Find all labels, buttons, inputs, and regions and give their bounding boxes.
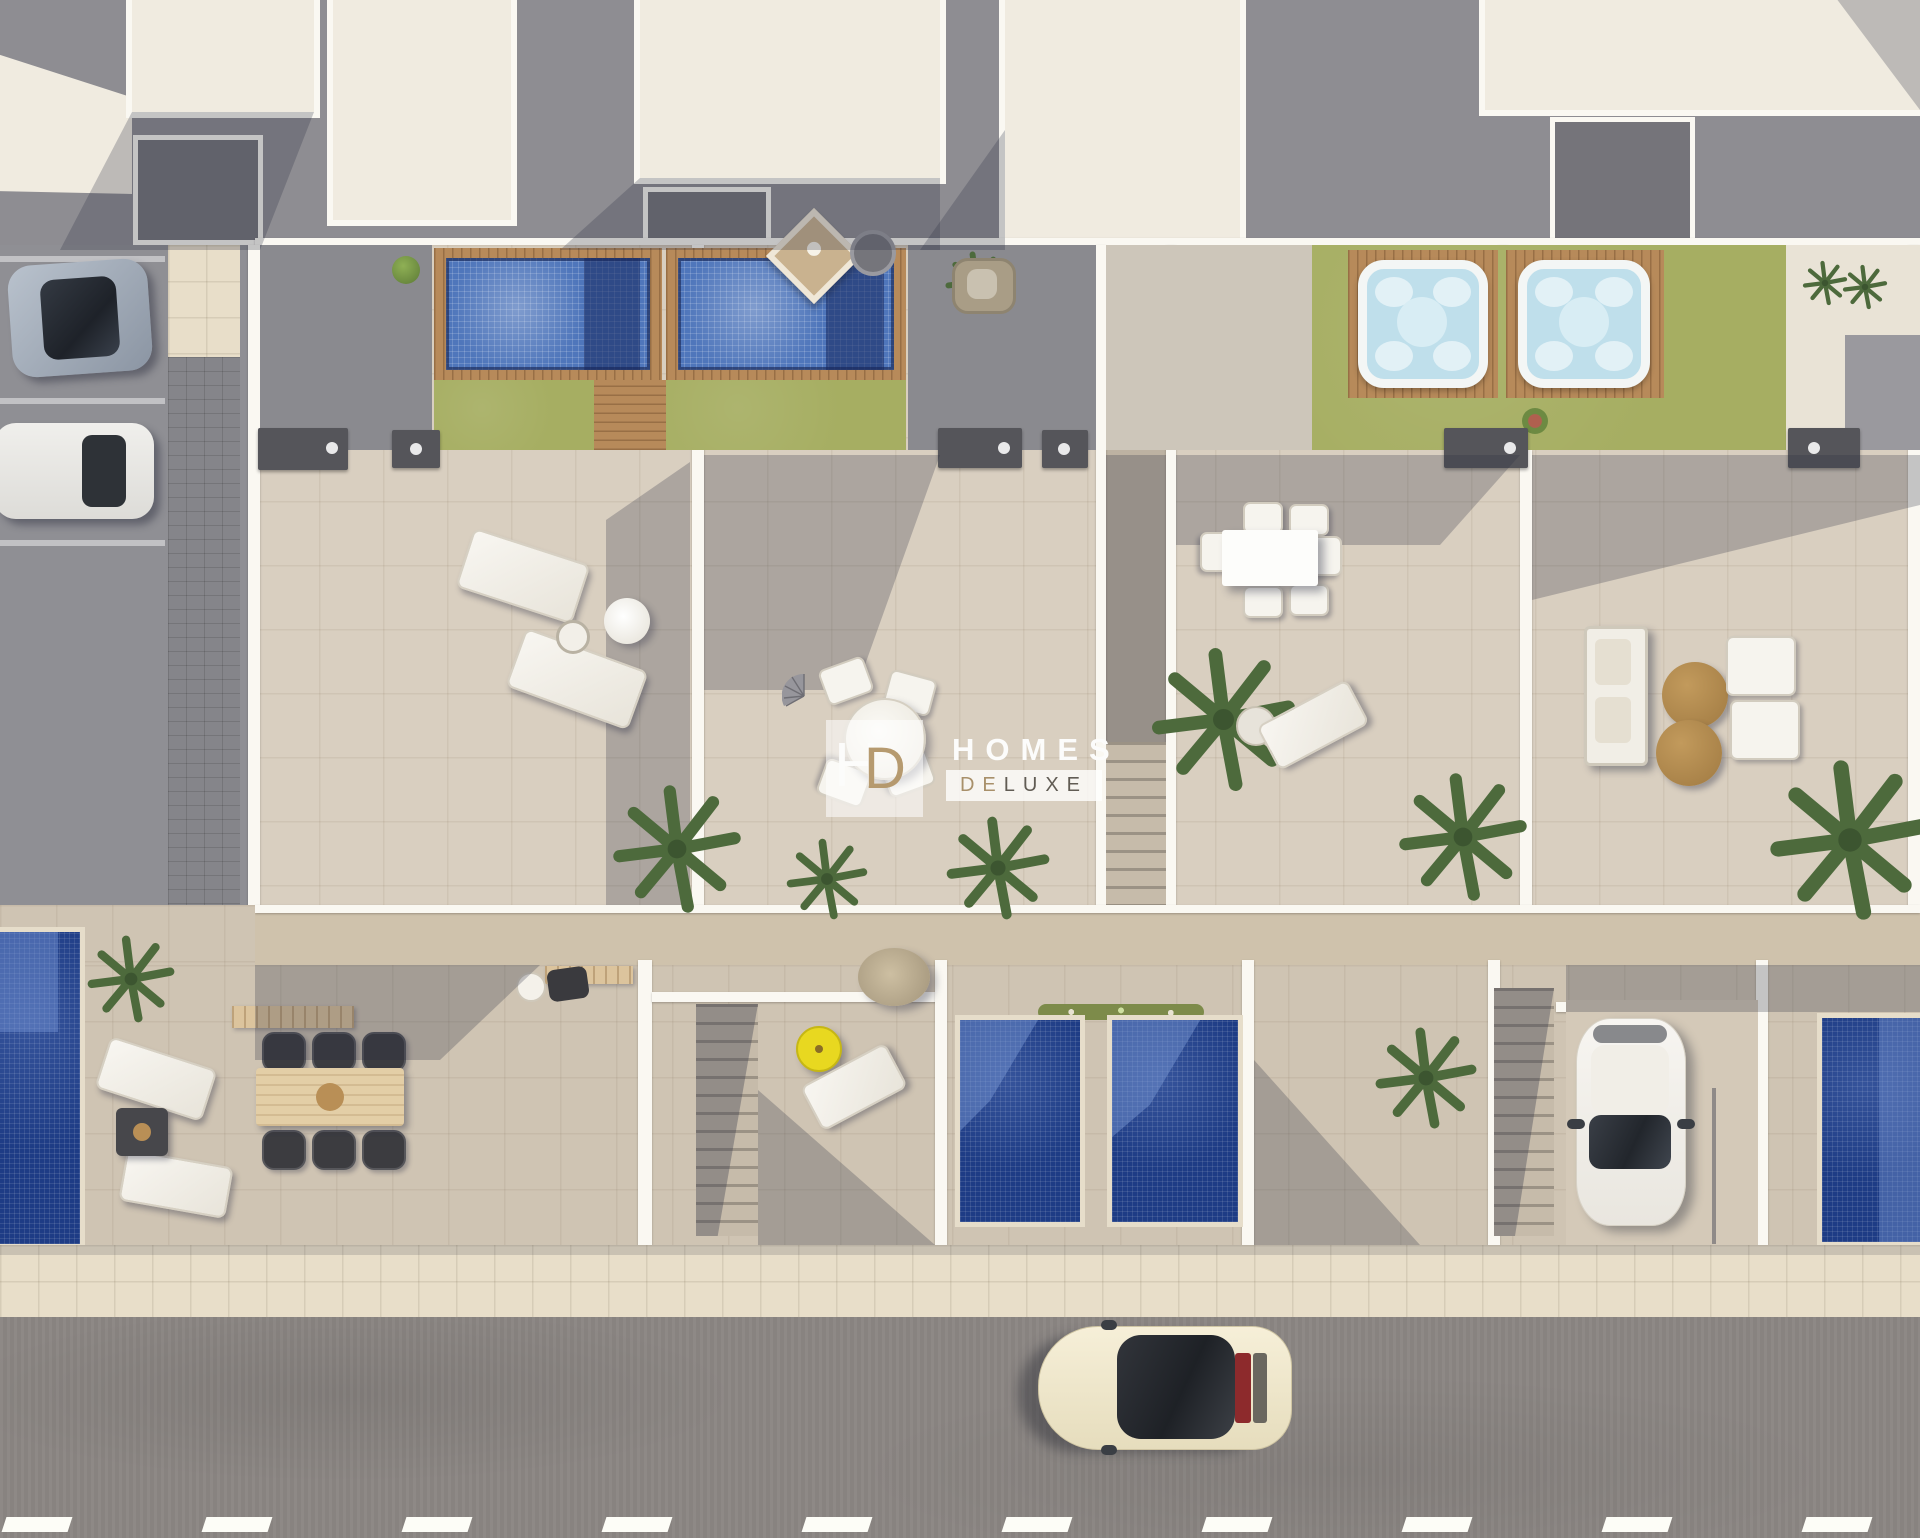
stair-shadow [696,1004,758,1236]
driveway-car-white [1576,1018,1686,1226]
outdoor-kitchen [1042,430,1088,468]
rooftop [1005,0,1240,240]
umbrella-yellow [796,1026,842,1072]
jacuzzi-center [1559,297,1609,347]
dining-chair [1243,586,1283,618]
car-mirror [1101,1445,1117,1455]
facade-band [255,905,1920,965]
rooftop-pool [446,258,650,370]
lane-marking [1002,1517,1073,1532]
parked-car-gray [6,257,153,378]
palm-plant [1388,1040,1464,1116]
pool-ledge [584,258,640,370]
car-roof [1591,1045,1669,1115]
outdoor-kitchen [1444,428,1528,468]
flower-planter [1038,1004,1204,1020]
lawn [666,380,906,450]
outdoor-kitchen [1788,428,1860,468]
palm-plant [1418,792,1508,882]
pool-reflection [0,932,58,1032]
wall [1520,450,1532,905]
pole-shadow [1712,1088,1716,1244]
watermark-monogram-d: D [864,740,906,798]
facade-parapet [255,905,1920,913]
sofa-cushion [1595,639,1631,685]
lane-marking [402,1517,473,1532]
parasol-center [804,239,824,259]
sofa-cushion [1595,697,1631,743]
hanging-chair [858,948,930,1006]
shrub [392,256,420,284]
dining-chair [362,1130,406,1170]
dining-table-white [1222,530,1318,586]
outdoor-sofa [1584,626,1648,766]
lane-marking [1802,1517,1873,1532]
lane-marking [2,1517,73,1532]
roof-courtyard [1555,122,1690,240]
stairs [1494,988,1554,1236]
jacuzzi [1358,260,1488,388]
armchair [1730,700,1800,760]
car-glass [82,435,126,507]
car-cabin-glass [1117,1335,1235,1439]
lane-marking [1602,1517,1673,1532]
outdoor-kitchen [258,428,348,470]
dining-chair [362,1032,406,1072]
dining-chair [262,1032,306,1072]
jacuzzi [1518,260,1650,388]
wall [638,960,652,1245]
street-car [1038,1326,1290,1448]
umbrella-pole [815,1045,823,1053]
rooftop [333,0,511,220]
round-table [850,230,896,276]
palm-plant [1800,790,1900,890]
pool-light-zone [960,1020,1080,1222]
palm-plant [96,944,166,1014]
paver-strip [168,245,240,357]
car-body [1038,1326,1292,1450]
sidewalk-shadow [0,1245,1920,1255]
umbrella-white [604,598,650,644]
pergola [232,1006,354,1028]
fire-table [116,1108,168,1156]
car-windshield [1589,1115,1671,1169]
stair-shadow [1494,988,1554,1236]
lane-marking [602,1517,673,1532]
roof-courtyard [648,192,766,240]
lane-marking [202,1517,273,1532]
watermark-homes: HOMES [952,732,1121,768]
palm-plant [958,828,1038,908]
rooftop [1485,0,1920,110]
fire-bowl [133,1123,151,1141]
dining-chair [312,1130,356,1170]
palm-plant [632,804,722,894]
dining-chair [262,1130,306,1170]
paver-path [168,357,240,905]
street [0,1317,1920,1538]
watermark-deluxe-de: DE [960,774,1004,797]
ottoman-table [1662,662,1728,728]
pool-light-zone [1879,1018,1920,1242]
rooftop [132,0,314,112]
wall [935,960,947,1245]
lawn [434,380,594,450]
dining-chair [1289,584,1329,616]
armchair [1726,636,1796,696]
wall [248,245,260,905]
car-mirror [1567,1119,1585,1129]
seat-cushion [967,269,997,299]
watermark-deluxe-luxe: LUXE [1004,774,1088,797]
ottoman-table [1656,720,1722,786]
car-glass [39,275,120,360]
lane-marking [1202,1517,1273,1532]
palm-plant [792,844,862,914]
dining-table-wood [256,1068,404,1126]
lane-marking [802,1517,873,1532]
side-table [516,972,546,1002]
grill [546,965,590,1002]
car-rear-glass [1593,1025,1667,1043]
pool-light-zone [1112,1020,1238,1222]
parked-car-white [0,423,154,519]
aerial-site-render: H D HOMES DELUXE [0,0,1920,1538]
outdoor-kitchen [938,428,1022,468]
ground-pool [960,1020,1080,1222]
watermark-deluxe: DELUXE [946,770,1102,801]
car-mirror [1101,1320,1117,1330]
parking-line [0,540,165,546]
ground-pool [1822,1018,1920,1242]
car-rear-gray-panel [1253,1353,1267,1423]
parking-line [0,398,165,404]
watermark-monogram: H D [826,720,923,817]
roof-courtyard [138,140,258,240]
wicker-seat [952,258,1016,314]
outdoor-kitchen [392,430,440,468]
table-plate [316,1083,344,1111]
wall [1242,960,1254,1245]
jacuzzi-center [1397,297,1447,347]
side-table [556,620,590,654]
dining-chair [312,1032,356,1072]
ground-pool [0,932,80,1244]
terrace-light-zone [1106,245,1312,450]
palm-plant [1840,262,1890,312]
ground-pool [1112,1020,1238,1222]
car-rear-red-panel [1235,1353,1251,1423]
stairs [696,1004,758,1236]
sidewalk [0,1245,1920,1317]
lane-marking [1402,1517,1473,1532]
wall [1096,245,1106,905]
car-mirror [1677,1119,1695,1129]
rooftop [640,0,940,178]
